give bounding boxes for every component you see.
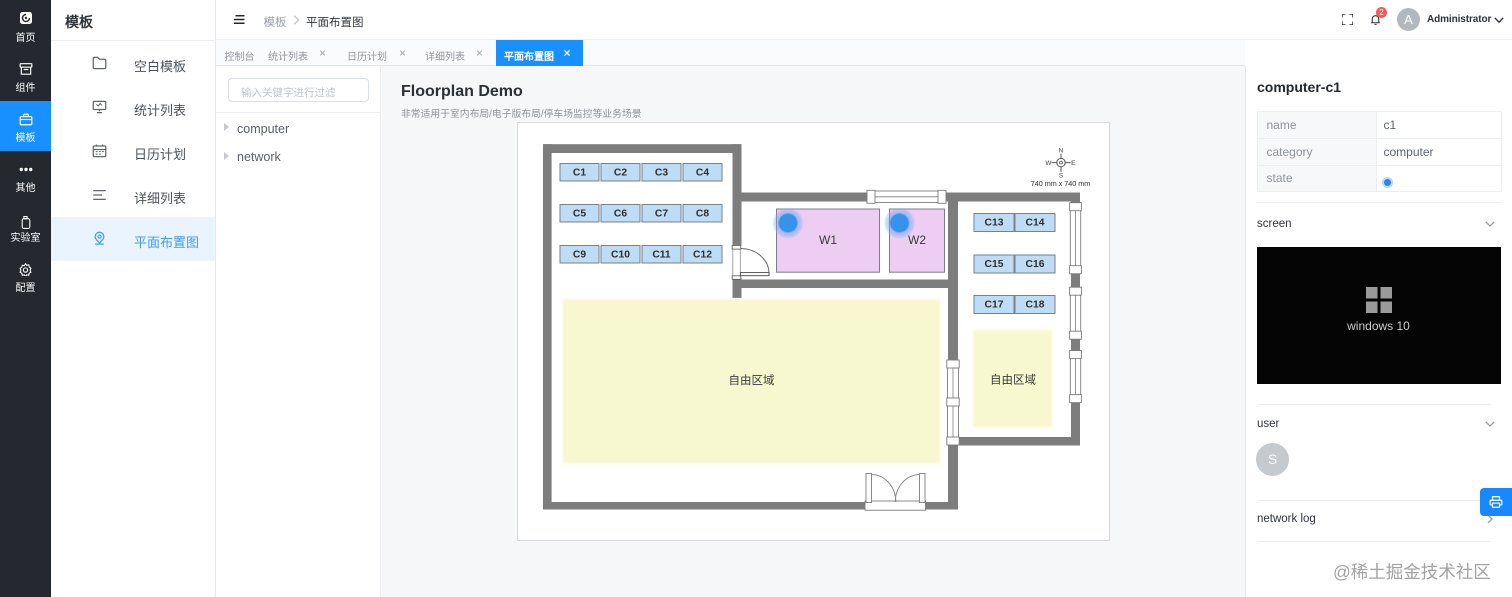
svg-text:C11: C11	[652, 250, 671, 261]
svg-text:C18: C18	[1026, 300, 1045, 311]
svg-text:C10: C10	[611, 250, 630, 261]
svg-text:C7: C7	[655, 209, 668, 220]
svg-text:E: E	[1071, 160, 1076, 167]
svg-text:W1: W1	[819, 233, 837, 247]
svg-text:C17: C17	[985, 300, 1004, 311]
svg-text:N: N	[1059, 148, 1064, 155]
svg-text:自由区域: 自由区域	[729, 373, 775, 387]
svg-text:W2: W2	[908, 233, 926, 247]
svg-text:自由区域: 自由区域	[990, 373, 1036, 387]
svg-text:C13: C13	[985, 218, 1004, 229]
svg-text:C8: C8	[696, 209, 709, 220]
svg-text:C9: C9	[573, 250, 586, 261]
svg-text:C6: C6	[614, 209, 627, 220]
svg-text:C15: C15	[985, 259, 1004, 270]
svg-text:C5: C5	[573, 209, 586, 220]
svg-text:C2: C2	[614, 168, 627, 179]
svg-text:C14: C14	[1026, 218, 1045, 229]
svg-text:C3: C3	[655, 168, 668, 179]
svg-text:C4: C4	[696, 168, 709, 179]
svg-text:C16: C16	[1026, 259, 1045, 270]
svg-text:740 mm x 740 mm: 740 mm x 740 mm	[1031, 179, 1091, 188]
svg-text:W: W	[1045, 160, 1052, 167]
svg-text:C1: C1	[573, 168, 586, 179]
svg-text:C12: C12	[693, 250, 712, 261]
